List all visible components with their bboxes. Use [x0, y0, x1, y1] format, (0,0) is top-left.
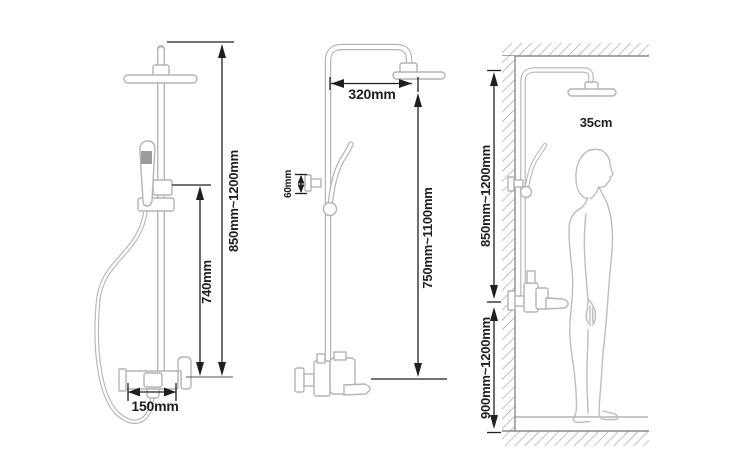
- valve-knob-side: [295, 368, 304, 392]
- slider-flange-wall: [508, 177, 514, 191]
- dim-riser-height: 740mm: [172, 185, 214, 376]
- middle-figure-side-view: 320mm 750mm~1100mm 60mm: [283, 47, 447, 396]
- dim-label-head-clearance: 35cm: [580, 115, 612, 130]
- dim-label-valve-floor-height: 900mm~1200mm: [478, 317, 493, 419]
- wall-hatch: [502, 56, 515, 446]
- wand-ball-joint-wall: [521, 187, 532, 198]
- hand-shower: [140, 141, 155, 206]
- person-arm: [584, 214, 588, 316]
- wall-mixer-valve: [508, 271, 568, 312]
- valve-spout-wall: [546, 298, 568, 309]
- rain-head-wall: [568, 89, 616, 96]
- rain-shower-head: [124, 75, 197, 83]
- floor-hatch: [502, 431, 649, 446]
- valve-spout: [344, 384, 370, 395]
- dim-arm-reach: 320mm: [330, 77, 412, 102]
- valve-riser-joint: [527, 271, 535, 283]
- dim-valve-floor-height: 900mm~1200mm: [478, 307, 501, 433]
- person-front-outline: [599, 187, 618, 420]
- right-figure-installation-view: 35cm 850mm~1200mm 900mm~1200mm: [478, 43, 649, 446]
- valve-stem-side: [304, 374, 314, 386]
- person-inner-leg: [587, 330, 588, 413]
- dim-label-arm-reach: 320mm: [348, 86, 395, 102]
- slider-stem: [311, 179, 321, 187]
- dim-column-height: 750mm~1100mm: [371, 77, 447, 379]
- wand-ball-joint: [324, 203, 337, 216]
- valve-handle: [178, 357, 191, 389]
- dim-label-column-height: 750mm~1100mm: [420, 187, 435, 288]
- dim-overall-height: 850mm~1200mm: [167, 42, 241, 376]
- rain-head-side: [393, 72, 445, 79]
- slider-bracket: [153, 180, 172, 195]
- valve-left-cap: [119, 369, 126, 391]
- valve-body-side: [314, 361, 330, 396]
- slider-stem-wall: [514, 180, 523, 187]
- valve-top-step: [317, 354, 325, 363]
- wall-column-pipe: [523, 70, 591, 300]
- valve-top-step2: [334, 352, 346, 360]
- person-head: [576, 149, 613, 199]
- left-figure-front-view: 850mm~1200mm 740mm 150mm: [97, 42, 241, 422]
- hand-shower-face: [141, 151, 152, 164]
- wall-column-pipe-inner: [523, 70, 591, 300]
- dim-label-valve-width: 150mm: [131, 398, 178, 414]
- ceiling-hatch: [502, 43, 649, 56]
- dim-bracket-offset: 60mm: [283, 170, 307, 198]
- valve-center-knob: [144, 373, 162, 387]
- dim-upper-section-height: 850mm~1200mm: [478, 71, 501, 303]
- valve-wall-flange: [508, 291, 515, 310]
- person-silhouette: [569, 149, 618, 422]
- hose-connector: [147, 389, 159, 398]
- dim-label-riser-height: 740mm: [199, 260, 214, 304]
- dim-label-overall-height: 850mm~1200mm: [226, 150, 241, 252]
- mixer-valve-side: [295, 352, 370, 396]
- shower-installation-diagram: 850mm~1200mm 740mm 150mm: [0, 0, 750, 461]
- dim-label-bracket-offset: 60mm: [283, 170, 294, 198]
- diagram-canvas: 850mm~1200mm 740mm 150mm: [0, 0, 750, 461]
- dim-label-upper-section-height: 850mm~1200mm: [478, 145, 493, 247]
- slider-flange: [305, 175, 311, 191]
- valve-stem-wall: [515, 296, 524, 306]
